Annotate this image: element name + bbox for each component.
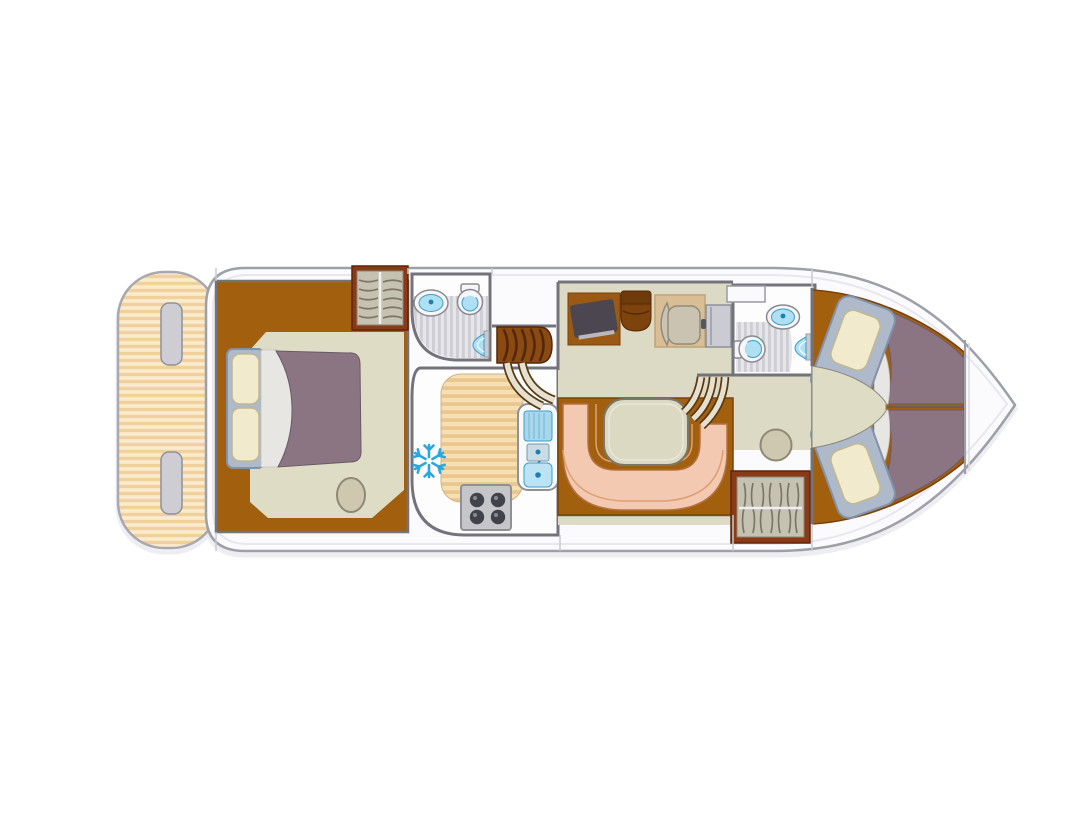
boat-floor-plan (0, 0, 1092, 819)
galley-worktop (441, 374, 523, 502)
bathroom-fwd (727, 285, 815, 375)
floor-plan-canvas (0, 0, 1092, 819)
tv-cabinet (568, 293, 620, 345)
deck-step-bottom (161, 452, 182, 514)
wardrobe-fwd (731, 471, 810, 543)
helm-console-icon (706, 305, 731, 347)
sink-icon (767, 305, 800, 329)
bench-seat (621, 291, 651, 331)
stool (337, 478, 365, 512)
double-bed (227, 349, 361, 468)
owner-cabin (216, 266, 408, 532)
pillow (232, 354, 259, 404)
kitchen-sink (518, 404, 558, 490)
cabinet (727, 286, 765, 302)
stool (761, 430, 792, 461)
pillow (232, 408, 259, 461)
wardrobe-aft (352, 266, 408, 330)
dinette-table (604, 399, 688, 465)
stove-burner-icon (461, 485, 511, 530)
deck-step-top (161, 303, 182, 365)
toilet-icon (458, 284, 483, 315)
sink-icon (414, 290, 448, 316)
bathroom-aft (412, 274, 490, 360)
